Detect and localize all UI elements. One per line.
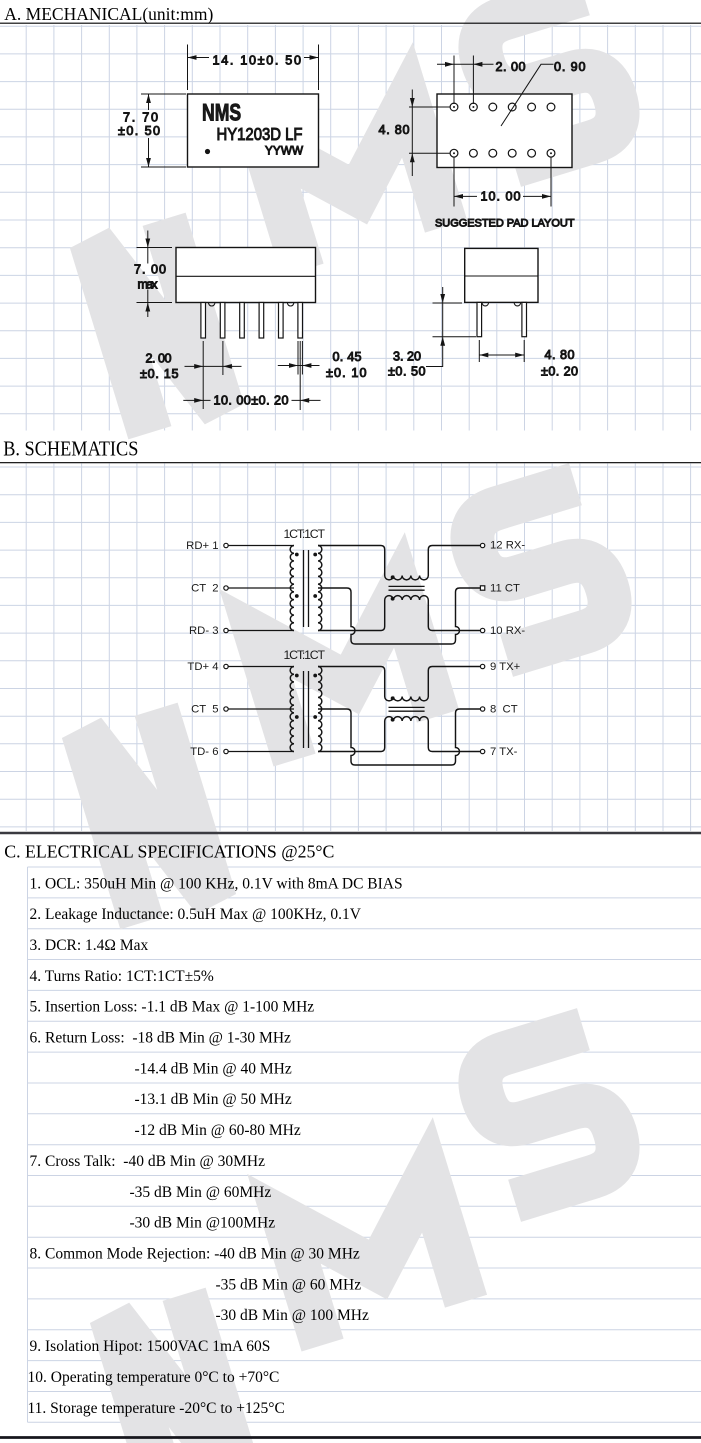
svg-text:YYWW: YYWW bbox=[265, 145, 303, 158]
svg-text:±0. 50: ±0. 50 bbox=[118, 124, 160, 138]
svg-text:14. 10±0. 50: 14. 10±0. 50 bbox=[213, 54, 302, 68]
svg-text:0. 90: 0. 90 bbox=[554, 60, 586, 74]
svg-text:1CT:1CT: 1CT:1CT bbox=[284, 527, 326, 541]
svg-text:5. Insertion Loss: -1.1 dB Max: 5. Insertion Loss: -1.1 dB Max @ 1-100 M… bbox=[30, 999, 315, 1016]
svg-text:CT 2: CT 2 bbox=[191, 583, 218, 595]
svg-text:±0. 15: ±0. 15 bbox=[140, 367, 179, 381]
svg-text:-35 dB Min @ 60MHz: -35 dB Min @ 60MHz bbox=[130, 1184, 272, 1201]
svg-text:4. 80: 4. 80 bbox=[379, 123, 410, 137]
svg-text:SUGGESTED PAD LAYOUT: SUGGESTED PAD LAYOUT bbox=[435, 218, 575, 230]
svg-text:3. DCR: 1.4Ω Max: 3. DCR: 1.4Ω Max bbox=[30, 937, 149, 954]
svg-text:7. 70: 7. 70 bbox=[123, 111, 158, 125]
svg-text:RD+ 1: RD+ 1 bbox=[186, 540, 218, 552]
svg-text:0. 45: 0. 45 bbox=[333, 350, 362, 364]
svg-text:1. OCL: 350uH Min @ 100 KHz, 0: 1. OCL: 350uH Min @ 100 KHz, 0.1V with 8… bbox=[30, 875, 403, 892]
svg-text:2. Leakage Inductance: 0.5uH M: 2. Leakage Inductance: 0.5uH Max @ 100KH… bbox=[30, 906, 362, 923]
svg-text:-12 dB Min @ 60-80 MHz: -12 dB Min @ 60-80 MHz bbox=[135, 1122, 301, 1139]
svg-text:10. 00: 10. 00 bbox=[481, 190, 521, 204]
svg-text:-14.4 dB Min @ 40 MHz: -14.4 dB Min @ 40 MHz bbox=[135, 1060, 292, 1077]
svg-text:4. Turns Ratio: 1CT:1CT±5%: 4. Turns Ratio: 1CT:1CT±5% bbox=[30, 968, 214, 985]
svg-text:4. 80: 4. 80 bbox=[545, 348, 575, 362]
svg-text:-30 dB Min @ 100 MHz: -30 dB Min @ 100 MHz bbox=[216, 1307, 369, 1324]
svg-text:RD- 3: RD- 3 bbox=[189, 625, 219, 637]
svg-text:max: max bbox=[138, 278, 159, 292]
svg-text:2. 00: 2. 00 bbox=[496, 60, 526, 74]
svg-text:TD+ 4: TD+ 4 bbox=[187, 661, 218, 673]
svg-text:-30 dB Min @100MHz: -30 dB Min @100MHz bbox=[130, 1215, 276, 1232]
svg-text:6. Return Loss: -18 dB Min @: 6. Return Loss: -18 dB Min @ 1-30 MHz bbox=[30, 1030, 292, 1047]
svg-text:CT 5: CT 5 bbox=[191, 704, 218, 716]
svg-text:A. MECHANICAL(unit:mm): A. MECHANICAL(unit:mm) bbox=[4, 4, 213, 24]
svg-text:8 CT: 8 CT bbox=[490, 704, 518, 716]
svg-text:9 TX+: 9 TX+ bbox=[490, 661, 521, 673]
svg-text:B. SCHEMATICS: B. SCHEMATICS bbox=[3, 439, 138, 461]
svg-text:10 RX-: 10 RX- bbox=[490, 625, 525, 637]
svg-text:±0. 20: ±0. 20 bbox=[541, 365, 578, 379]
svg-text:±0. 50: ±0. 50 bbox=[388, 365, 426, 379]
svg-text:8. Common Mode Rejection: -40: 8. Common Mode Rejection: -40 dB Min @ 3… bbox=[30, 1246, 360, 1263]
svg-text:12 RX-: 12 RX- bbox=[490, 540, 525, 552]
svg-text:-13.1 dB Min @ 50 MHz: -13.1 dB Min @ 50 MHz bbox=[135, 1091, 292, 1108]
svg-text:9. Isolation Hipot: 1500VAC 1m: 9. Isolation Hipot: 1500VAC 1mA 60S bbox=[30, 1338, 271, 1355]
svg-text:7. 00: 7. 00 bbox=[134, 263, 166, 277]
svg-text:10. Operating temperature 0°C: 10. Operating temperature 0°C to +70°C bbox=[28, 1369, 280, 1386]
svg-text:10. 00±0. 20: 10. 00±0. 20 bbox=[214, 394, 289, 408]
svg-text:11. Storage temperature -20°C: 11. Storage temperature -20°C to +125°C bbox=[28, 1400, 285, 1417]
svg-text:HY1203D LF: HY1203D LF bbox=[217, 125, 303, 144]
svg-text:±0. 10: ±0. 10 bbox=[326, 366, 367, 380]
svg-text:TD- 6: TD- 6 bbox=[190, 746, 218, 758]
svg-text:11 CT: 11 CT bbox=[490, 583, 520, 595]
svg-text:1CT:1CT: 1CT:1CT bbox=[284, 648, 326, 662]
svg-text:7. Cross Talk: -40 dB Min @ 3: 7. Cross Talk: -40 dB Min @ 30MHz bbox=[30, 1153, 266, 1170]
svg-text:NMS: NMS bbox=[202, 99, 241, 127]
svg-text:-35 dB Min @ 60 MHz: -35 dB Min @ 60 MHz bbox=[216, 1276, 362, 1293]
svg-text:2. 00: 2. 00 bbox=[146, 352, 172, 366]
svg-text:C. ELECTRICAL SPECIFICATIONS @: C. ELECTRICAL SPECIFICATIONS @25°C bbox=[4, 842, 334, 862]
svg-text:7 TX-: 7 TX- bbox=[490, 746, 518, 758]
svg-text:3. 20: 3. 20 bbox=[393, 350, 421, 364]
